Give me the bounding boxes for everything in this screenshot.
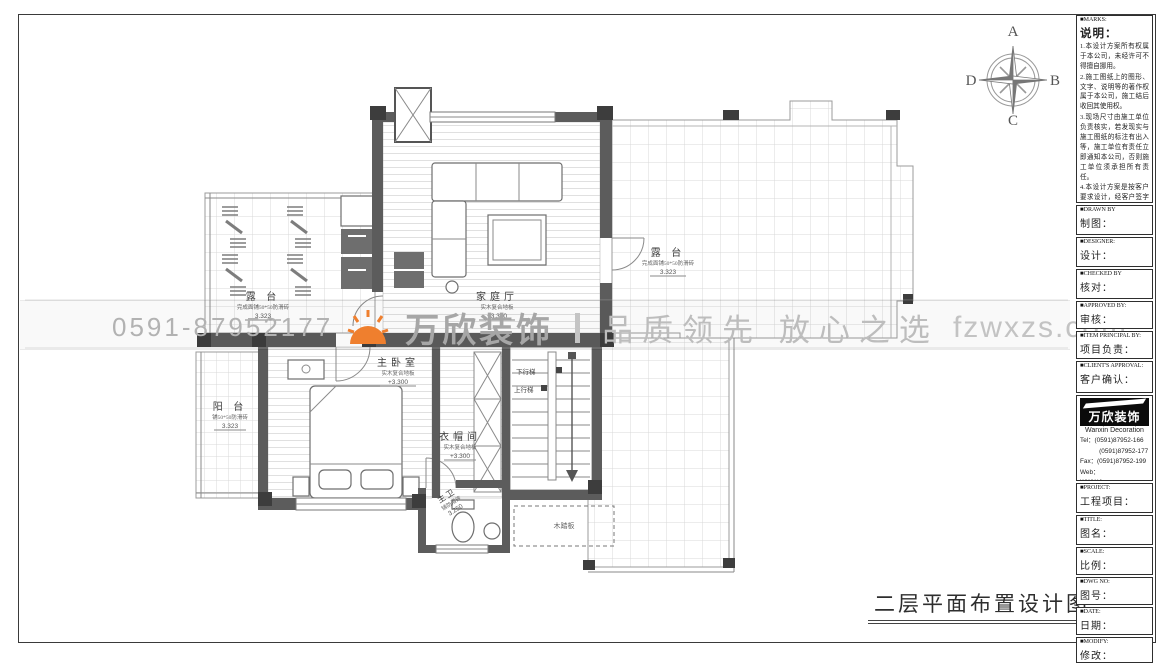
project-section: ■PROJECT: 工程项目：: [1076, 483, 1153, 513]
svg-text:主卧室: 主卧室: [377, 356, 419, 369]
compass-rose: A B C D: [965, 22, 1061, 126]
client-approval-label-zh: 客户确认：: [1080, 371, 1149, 386]
checked-by-label-zh: 核对：: [1080, 279, 1149, 294]
logo-brand-en: Wanxin Decoration: [1080, 427, 1149, 434]
drawn-by-section: ■DRAWN BY 制图：: [1076, 205, 1153, 235]
company-logo: 万欣装饰: [1080, 398, 1149, 426]
compass-label-d: D: [966, 73, 977, 89]
logo-brand-zh: 万欣装饰: [1080, 408, 1149, 425]
compass-label-a: A: [1008, 24, 1019, 40]
dwg-no-section: ■DWG NO: 图号：: [1076, 577, 1153, 605]
scale-label-en: ■SCALE:: [1080, 549, 1149, 555]
designer-section: ■DESIGNER: 设计：: [1076, 237, 1153, 267]
svg-text:完成面铺50*50防滑砖: 完成面铺50*50防滑砖: [642, 259, 695, 267]
svg-text:铺50*50防滑砖: 铺50*50防滑砖: [212, 413, 248, 421]
drawn-by-label-en: ■DRAWN BY: [1080, 207, 1149, 213]
principal-section: ■ITEM PRINCIPAL BY: 项目负责：: [1076, 331, 1153, 359]
designer-label-en: ■DESIGNER:: [1080, 239, 1149, 245]
svg-text:露 台: 露 台: [651, 246, 686, 259]
title-label-en: ■TITLE:: [1080, 517, 1149, 523]
platform-label: 木踏板: [554, 521, 575, 530]
logo-brush-icon: [1083, 399, 1146, 409]
svg-text:衣帽间: 衣帽间: [439, 430, 481, 443]
tv-cabinets: [341, 196, 374, 289]
client-approval-section: ■CLIENT'S APPROVAL: 客户确认：: [1076, 361, 1153, 393]
wardrobe: [474, 352, 501, 492]
contact-tel-2: (0591)87952-177: [1080, 447, 1149, 458]
dwg-no-label-en: ■DWG NO:: [1080, 579, 1149, 585]
modify-section: ■MODIFY: 修改：: [1076, 637, 1153, 663]
notes-section: ■MARKS: 说明： 1.本设计方案所有权属于本公司，未经许可不得擅自挪用。 …: [1076, 15, 1153, 203]
stair-up-label: 上行梯: [514, 385, 534, 394]
dwg-no-label-zh: 图号：: [1080, 587, 1149, 602]
drawing-title-text: 二层平面布置设计图: [868, 588, 1096, 621]
svg-text:实木复合地板: 实木复合地板: [443, 443, 477, 451]
designer-label-zh: 设计：: [1080, 247, 1149, 262]
note-4: 4.本设计方案是按客户要求设计，经客户签字即视为同意认可，不得随意更改。: [1080, 183, 1149, 203]
date-label-en: ■DATE:: [1080, 609, 1149, 615]
watermark-band: [20, 300, 1070, 350]
scale-label-zh: 比例：: [1080, 557, 1149, 572]
compass-label-c: C: [1008, 113, 1018, 126]
date-label-zh: 日期：: [1080, 617, 1149, 632]
note-2: 2.施工图纸上的图形、文字、说明等的著作权属于本公司，施工结后收回其使用权。: [1080, 73, 1149, 113]
note-3: 3.现场尺寸由施工单位负责核实，若发现实与施工图纸的标注有出入等，施工单位有责任…: [1080, 113, 1149, 182]
svg-text:阳 台: 阳 台: [213, 400, 248, 413]
contact-fax: Fax：(0591)87952-199: [1080, 457, 1149, 468]
company-section: 万欣装饰 Wanxin Decoration Tel：(0591)87952-1…: [1076, 395, 1153, 481]
notes-title: 说明：: [1080, 25, 1149, 41]
title-section: ■TITLE: 图名：: [1076, 515, 1153, 545]
project-label-en: ■PROJECT:: [1080, 485, 1149, 491]
contact-web: Web：WWW.fzwxzs.com: [1080, 468, 1149, 481]
contact-tel-1: Tel：(0591)87952-166: [1080, 436, 1149, 447]
approved-by-label-en: ■APPROVED BY:: [1080, 303, 1149, 309]
drawing-title-underline: [868, 623, 1096, 624]
marks-label: ■MARKS:: [1080, 17, 1149, 23]
modify-label-zh: 修改：: [1080, 647, 1149, 662]
svg-text:实木复合地板: 实木复合地板: [381, 369, 415, 377]
svg-text:3.323: 3.323: [222, 423, 239, 430]
svg-text:3.323: 3.323: [660, 269, 677, 276]
modify-label-en: ■MODIFY:: [1080, 639, 1149, 645]
project-label-zh: 工程项目：: [1080, 493, 1149, 508]
note-1: 1.本设计方案所有权属于本公司，未经许可不得擅自挪用。: [1080, 42, 1149, 72]
drawing-title: 二层平面布置设计图: [868, 588, 1096, 624]
date-section: ■DATE: 日期：: [1076, 607, 1153, 635]
stair-down-label: 下行梯: [516, 367, 536, 376]
principal-label-zh: 项目负责：: [1080, 341, 1149, 356]
client-approval-label-en: ■CLIENT'S APPROVAL:: [1080, 363, 1149, 369]
scale-section: ■SCALE: 比例：: [1076, 547, 1153, 575]
svg-text:+3.300: +3.300: [388, 379, 408, 386]
approved-by-section: ■APPROVED BY: 审核：: [1076, 301, 1153, 329]
drawn-by-label-zh: 制图：: [1080, 215, 1149, 230]
title-block: ■MARKS: 说明： 1.本设计方案所有权属于本公司，未经许可不得擅自挪用。 …: [1076, 15, 1153, 639]
svg-text:+3.300: +3.300: [450, 453, 470, 460]
checked-by-section: ■CHECKED BY 核对：: [1076, 269, 1153, 299]
title-label-zh: 图名：: [1080, 525, 1149, 540]
compass-label-b: B: [1050, 73, 1060, 89]
terrace-bottom-right: [588, 338, 734, 572]
checked-by-label-en: ■CHECKED BY: [1080, 271, 1149, 277]
principal-label-en: ■ITEM PRINCIPAL BY:: [1080, 333, 1149, 339]
approved-by-label-zh: 审核：: [1080, 311, 1149, 326]
